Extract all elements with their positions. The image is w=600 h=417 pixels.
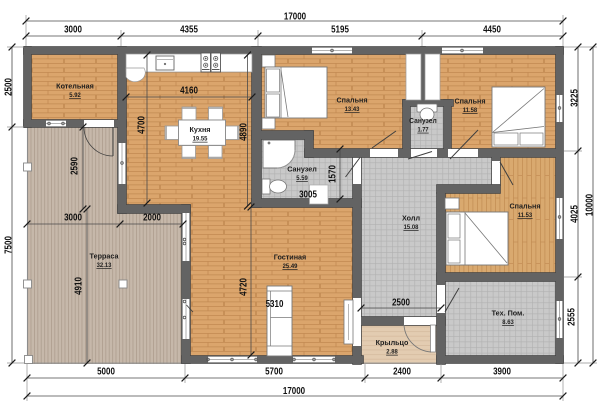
svg-text:5000: 5000 [97, 366, 115, 377]
svg-text:Санузел: Санузел [409, 118, 437, 125]
svg-text:8.63: 8.63 [502, 319, 514, 326]
svg-text:13.43: 13.43 [345, 106, 360, 113]
svg-text:3000: 3000 [64, 212, 82, 223]
svg-text:25.49: 25.49 [283, 263, 298, 270]
svg-text:2590: 2590 [69, 157, 80, 175]
svg-text:4355: 4355 [180, 24, 198, 35]
svg-text:Спальня: Спальня [336, 95, 367, 104]
svg-text:2500: 2500 [3, 78, 14, 96]
svg-text:4890: 4890 [238, 123, 249, 141]
svg-text:4700: 4700 [136, 116, 147, 134]
svg-text:10000: 10000 [584, 194, 595, 216]
svg-text:17000: 17000 [283, 385, 305, 396]
svg-text:1570: 1570 [327, 165, 338, 183]
svg-text:17000: 17000 [284, 11, 306, 22]
svg-text:5.92: 5.92 [69, 92, 81, 99]
svg-text:Терраса: Терраса [90, 251, 120, 260]
svg-text:2.88: 2.88 [386, 348, 398, 355]
svg-text:2000: 2000 [143, 212, 161, 223]
svg-text:11.53: 11.53 [518, 212, 533, 219]
svg-text:4160: 4160 [180, 85, 198, 96]
svg-text:Спальня: Спальня [509, 201, 540, 210]
svg-text:Санузел: Санузел [287, 164, 317, 173]
svg-text:7500: 7500 [3, 236, 14, 254]
svg-text:4450: 4450 [483, 24, 501, 35]
svg-text:5700: 5700 [265, 366, 283, 377]
svg-text:3225: 3225 [569, 89, 580, 107]
svg-text:2400: 2400 [393, 366, 411, 377]
svg-text:Котельная: Котельная [56, 81, 94, 90]
svg-text:Кухня: Кухня [189, 125, 210, 134]
svg-text:11.58: 11.58 [463, 107, 478, 114]
svg-text:Спальня: Спальня [454, 96, 485, 105]
svg-text:15.08: 15.08 [404, 224, 419, 231]
svg-text:5310: 5310 [266, 298, 284, 309]
svg-text:4025: 4025 [569, 205, 580, 223]
svg-text:19.55: 19.55 [193, 135, 208, 142]
svg-text:3000: 3000 [64, 24, 82, 35]
svg-text:4720: 4720 [238, 278, 249, 296]
svg-text:Крыльцо: Крыльцо [376, 338, 409, 347]
svg-text:4910: 4910 [73, 277, 84, 295]
svg-text:5195: 5195 [331, 24, 349, 35]
svg-text:Гостиная: Гостиная [274, 252, 307, 261]
svg-text:2555: 2555 [566, 308, 577, 326]
svg-text:Холл: Холл [402, 213, 420, 222]
svg-text:3005: 3005 [299, 189, 317, 200]
svg-text:1.77: 1.77 [417, 127, 429, 133]
svg-text:32.13: 32.13 [97, 262, 112, 269]
svg-text:2500: 2500 [392, 297, 410, 308]
svg-text:3900: 3900 [493, 366, 511, 377]
svg-text:5.59: 5.59 [296, 175, 308, 182]
svg-text:Тех. Пом.: Тех. Пом. [492, 308, 525, 317]
